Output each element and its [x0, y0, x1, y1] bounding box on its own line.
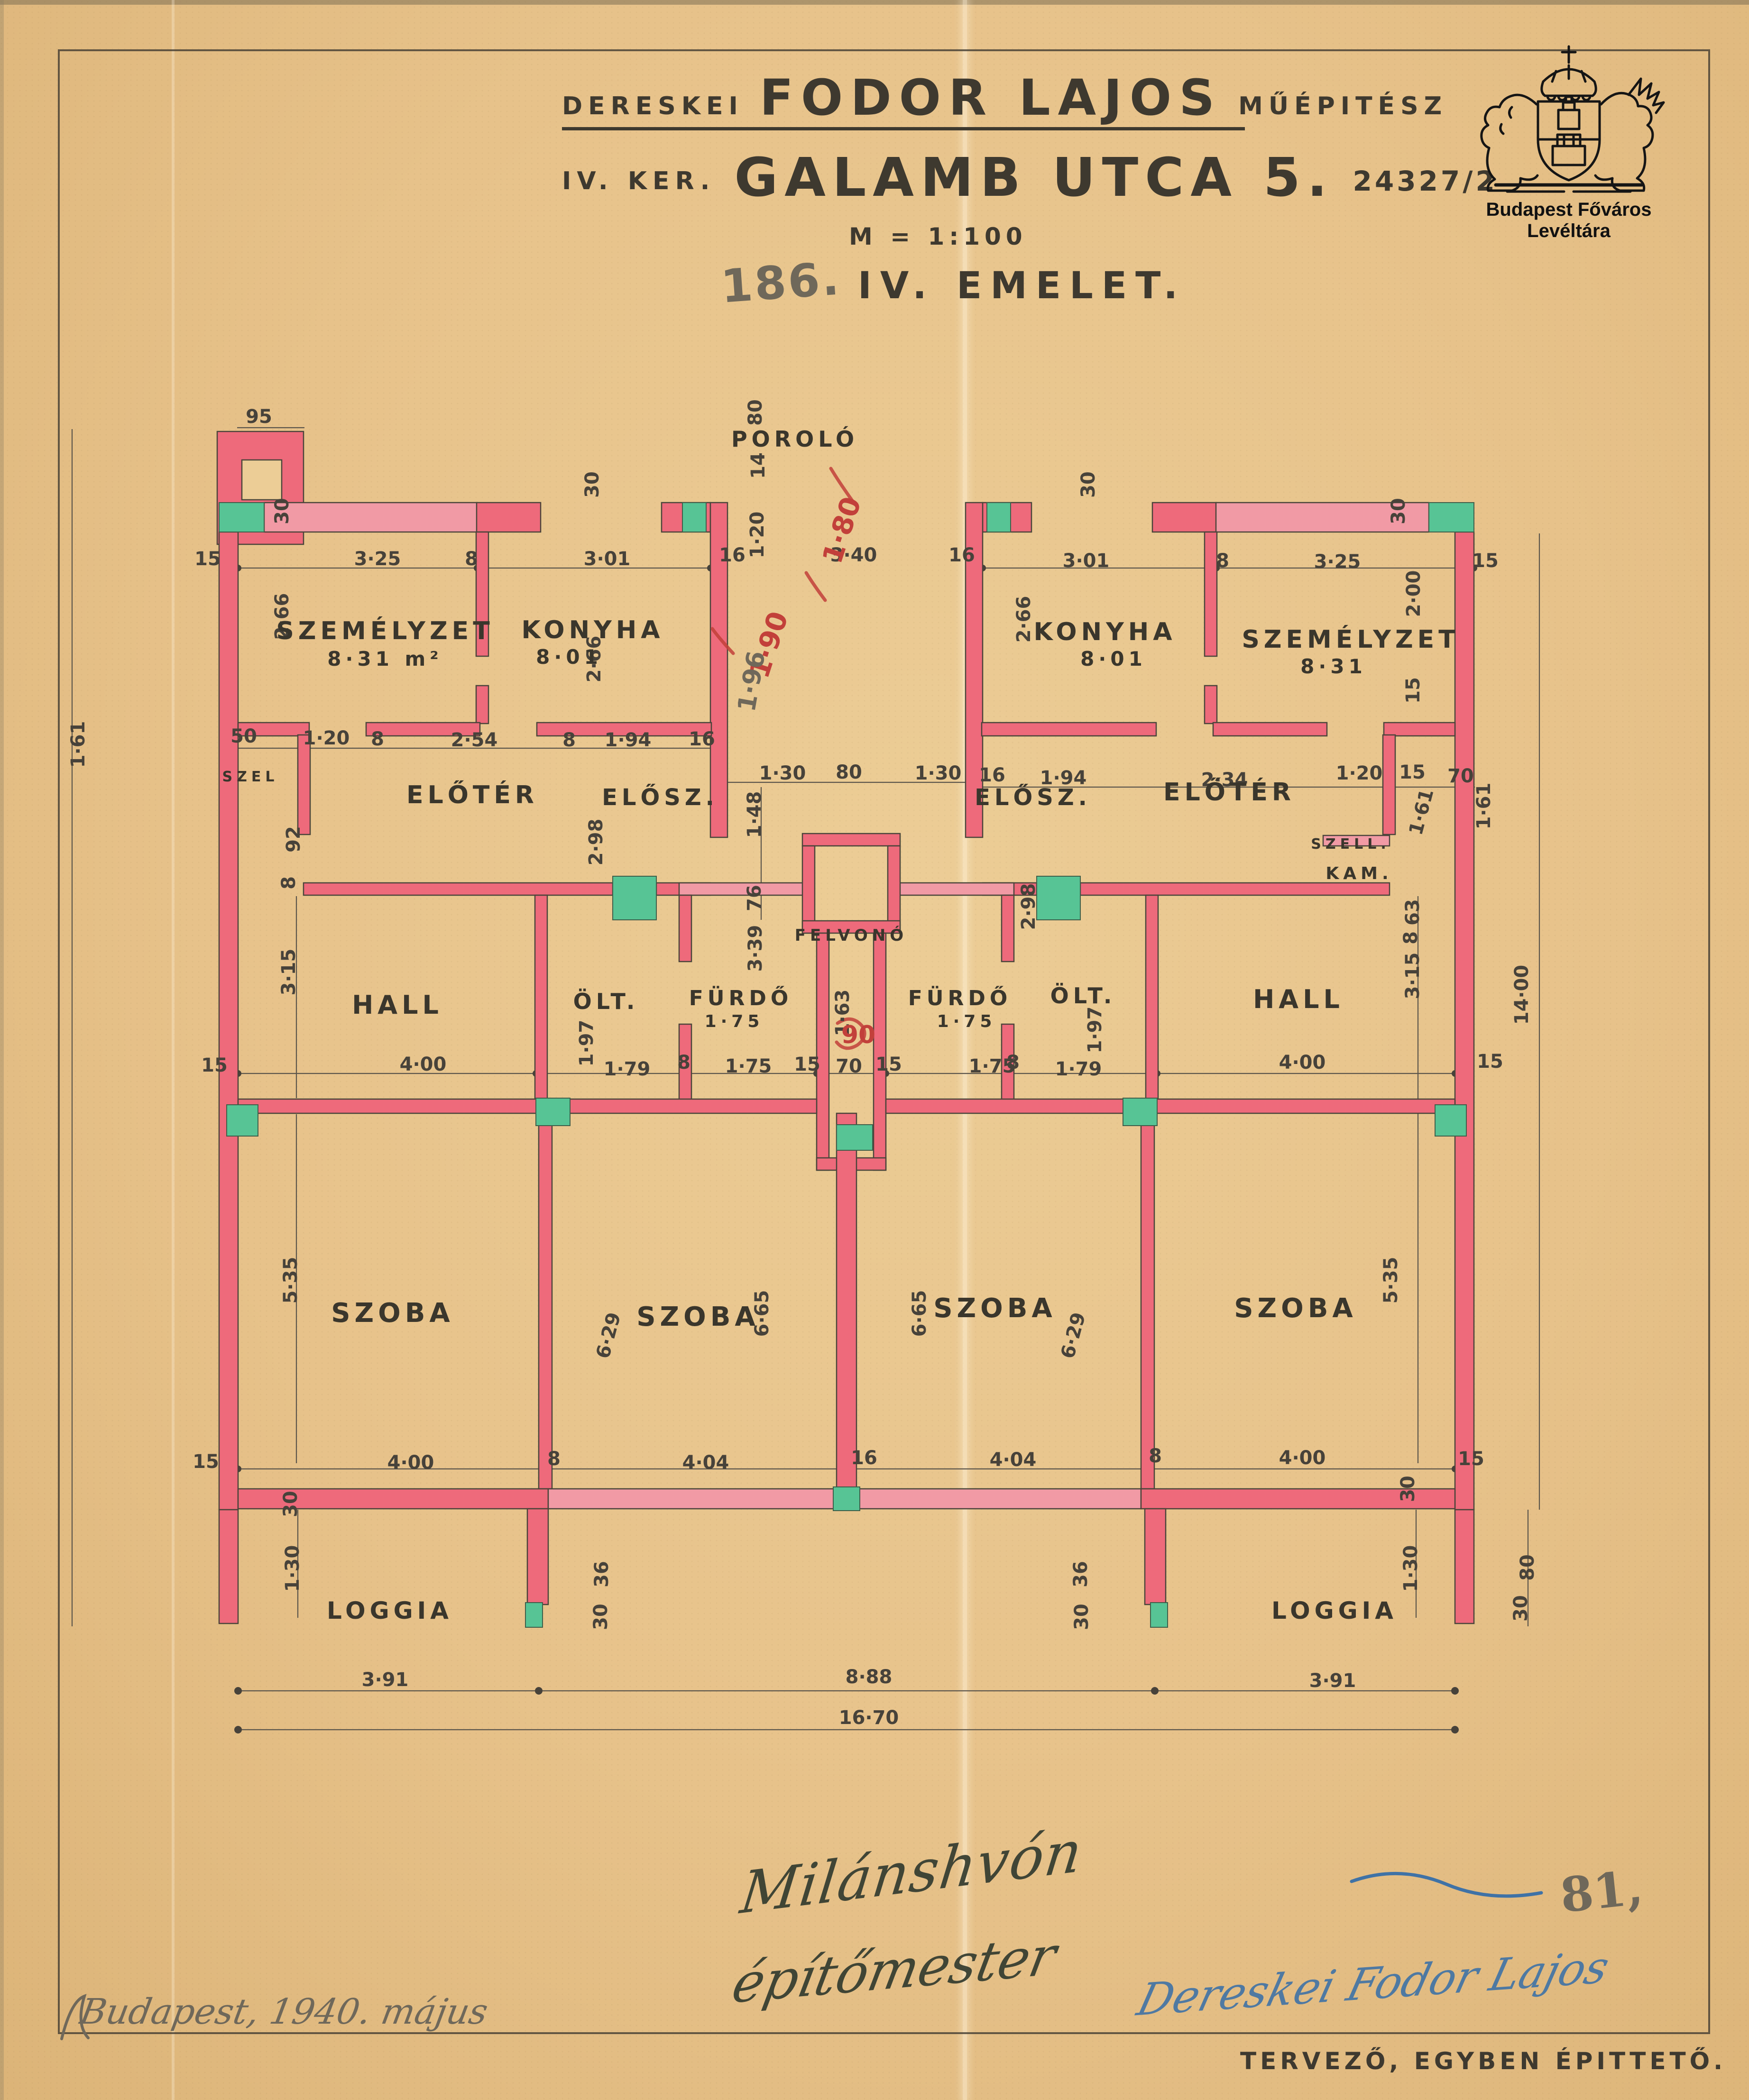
- dim-label: 30: [1388, 498, 1409, 524]
- dim-label: 1·79: [1055, 1058, 1102, 1080]
- room-label: HALL: [352, 990, 443, 1020]
- dim-label: 8: [562, 729, 576, 751]
- dim-label: 14·00: [1511, 965, 1533, 1025]
- room-label: ELŐTÉR: [1163, 778, 1295, 807]
- dim-label: 3·15: [278, 949, 300, 996]
- dim-label: 30: [581, 471, 603, 498]
- dim-label: 3·01: [1063, 550, 1110, 572]
- room-label: HALL: [1253, 984, 1344, 1014]
- dim-label: 2·98: [1018, 883, 1040, 930]
- ink-flourish: [1347, 1863, 1546, 1906]
- chimney-flue: [242, 460, 282, 500]
- dim-label: 8: [371, 728, 384, 750]
- dimension-text-layer: 9530303030153·2583·01163·40163·0183·2515…: [67, 399, 1538, 1729]
- floor-plan-drawing: 9530303030153·2583·01163·40163·0183·2515…: [0, 0, 1749, 2100]
- dim-label: 15: [875, 1054, 902, 1075]
- dim-label: 8: [547, 1448, 561, 1470]
- dim-label: 50: [230, 725, 257, 747]
- room-label: SZEL: [222, 769, 279, 785]
- room-label: KONYHA: [1033, 618, 1176, 646]
- room-label: SZELL.: [1311, 836, 1390, 853]
- dim-label: 15: [194, 548, 221, 570]
- room-label: SZOBA: [636, 1302, 760, 1332]
- dim-label: 80: [836, 761, 862, 783]
- dim-label: 15: [193, 1451, 219, 1473]
- dim-label: 8: [278, 876, 300, 890]
- dim-label: 4·04: [990, 1449, 1037, 1471]
- dim-label: 30: [1397, 1476, 1419, 1502]
- dim-label: 8: [1216, 550, 1229, 572]
- dim-label: 80: [1517, 1554, 1538, 1581]
- dim-label: 30: [271, 498, 293, 524]
- archive-page-number: 81,: [1557, 1859, 1645, 1924]
- dim-label: 70: [1447, 765, 1474, 787]
- dim-label: 3·15: [1402, 953, 1424, 1000]
- room-label: ELŐSZ.: [602, 784, 718, 811]
- room-label: 8·01: [1080, 647, 1147, 670]
- dim-label: 1·94: [605, 729, 652, 751]
- dim-label: 30: [1510, 1595, 1532, 1622]
- room-label: FÜRDŐ: [689, 985, 793, 1010]
- dim-label: 3·91: [362, 1669, 409, 1691]
- dim-label: 5·35: [1380, 1257, 1402, 1304]
- dim-label: 8·88: [846, 1666, 893, 1688]
- room-label: LOGGIA: [1271, 1597, 1398, 1624]
- dim-label: 15: [1399, 761, 1426, 783]
- dim-label: 1·30: [282, 1545, 304, 1592]
- dim-label: 15: [794, 1054, 820, 1075]
- dim-label: 80: [745, 399, 766, 426]
- dim-label: 1·30: [915, 762, 962, 784]
- dim-label: 16: [689, 728, 715, 750]
- room-label: 8·01: [536, 645, 602, 669]
- room-label: FÜRDŐ: [908, 985, 1012, 1010]
- dim-label: 8: [1400, 931, 1422, 945]
- dim-label: 14: [747, 452, 769, 479]
- room-label: ÖLT.: [573, 989, 639, 1014]
- dim-label: 4·00: [387, 1452, 434, 1474]
- room-label: 8·31: [1300, 655, 1367, 678]
- dim-label: 1·48: [744, 791, 765, 838]
- room-label: ELŐSZ.: [975, 784, 1091, 811]
- dim-label: 8: [1006, 1052, 1020, 1073]
- dim-label: 1·97: [576, 1020, 598, 1067]
- dim-label: 95: [246, 406, 272, 428]
- dim-label: 8: [465, 548, 478, 570]
- dim-label: 6·29: [1057, 1310, 1090, 1361]
- dim-label: 6·65: [909, 1290, 930, 1337]
- dim-label: 4·04: [682, 1452, 729, 1474]
- room-label: LOGGIA: [327, 1597, 453, 1624]
- dim-label: 76: [744, 885, 765, 911]
- dim-label: 3·01: [584, 548, 631, 570]
- room-label: SZEMÉLYZET: [276, 616, 494, 645]
- room-label: KONYHA: [521, 616, 664, 644]
- dim-label: 3·39: [745, 925, 766, 972]
- dim-label: 92: [283, 826, 304, 853]
- dim-label: 1·30: [759, 762, 806, 784]
- blueprint-sheet: DERESKEI FODOR LAJOS MŰÉPITÉSZ IV. KER. …: [0, 0, 1749, 2100]
- dim-label: 16·70: [839, 1707, 899, 1729]
- room-label: 8·31 m²: [327, 647, 442, 670]
- dim-label: 16: [979, 764, 1005, 786]
- room-label: SZOBA: [1234, 1293, 1357, 1324]
- dim-label: 4·00: [1279, 1447, 1326, 1469]
- dim-label: 63: [1402, 899, 1424, 926]
- room-label: SZEMÉLYZET: [1242, 625, 1459, 654]
- dim-label: 15: [1402, 677, 1424, 704]
- dim-label: 16: [851, 1447, 877, 1469]
- dim-label: 15: [1472, 550, 1499, 572]
- dim-label: 36: [591, 1561, 613, 1587]
- dim-label: 15: [1458, 1448, 1484, 1470]
- dim-label: 1·30: [1400, 1545, 1422, 1592]
- dim-label: 4·00: [400, 1054, 447, 1075]
- dim-label: 3·25: [354, 548, 401, 570]
- dim-label: 3·91: [1309, 1670, 1356, 1692]
- room-label: 1·75: [705, 1012, 764, 1031]
- dim-label: 15: [201, 1055, 228, 1076]
- dim-label: 1·79: [604, 1058, 651, 1080]
- red-annotation: 90: [841, 1021, 875, 1049]
- dim-label: 1·97: [1084, 1007, 1106, 1054]
- dim-label: 15: [1477, 1051, 1503, 1073]
- dim-label: 1·61: [1473, 783, 1495, 830]
- date-note: Budapest, 1940. május: [77, 1991, 491, 2032]
- dim-label: 1·75: [725, 1055, 772, 1077]
- dim-label: 30: [1071, 1604, 1093, 1630]
- dim-label: 8: [677, 1052, 690, 1073]
- room-label: FELVONÓ: [795, 926, 908, 945]
- dim-label: 2·54: [451, 729, 498, 751]
- dim-label: 1·20: [1336, 762, 1383, 784]
- dim-label: 1·20: [746, 512, 768, 559]
- dim-label: 36: [1070, 1561, 1092, 1587]
- dim-label: 4·00: [1279, 1052, 1326, 1073]
- dim-label: 1·61: [67, 721, 89, 768]
- role-caption: TERVEZŐ, EGYBEN ÉPITTETŐ.: [1240, 2047, 1726, 2075]
- dim-label: 2·00: [1403, 570, 1425, 617]
- dim-label: 3·25: [1314, 551, 1361, 573]
- dim-label: 2·98: [585, 819, 607, 866]
- room-label: SZOBA: [331, 1298, 454, 1329]
- dim-label: 30: [1077, 471, 1099, 498]
- dim-label: 8: [1149, 1445, 1162, 1467]
- dim-label: 1·61: [1405, 787, 1438, 837]
- dim-label: 30: [590, 1604, 612, 1630]
- dim-label: 5·35: [280, 1257, 302, 1304]
- dim-label: 2·66: [1013, 596, 1035, 643]
- room-label: SZOBA: [933, 1293, 1057, 1324]
- dim-label: 6·29: [592, 1310, 625, 1361]
- dim-label: 30: [280, 1491, 302, 1517]
- dim-label: 16: [719, 544, 746, 566]
- dim-label: 70: [836, 1055, 862, 1077]
- dim-label: 1·20: [303, 727, 350, 749]
- room-label: ELŐTÉR: [406, 780, 538, 809]
- room-label: 1·75: [937, 1012, 996, 1031]
- room-label: POROLÓ: [731, 426, 858, 452]
- dim-label: 16: [948, 544, 975, 566]
- room-label: ÖLT.: [1050, 983, 1116, 1009]
- room-label: KAM.: [1326, 864, 1392, 883]
